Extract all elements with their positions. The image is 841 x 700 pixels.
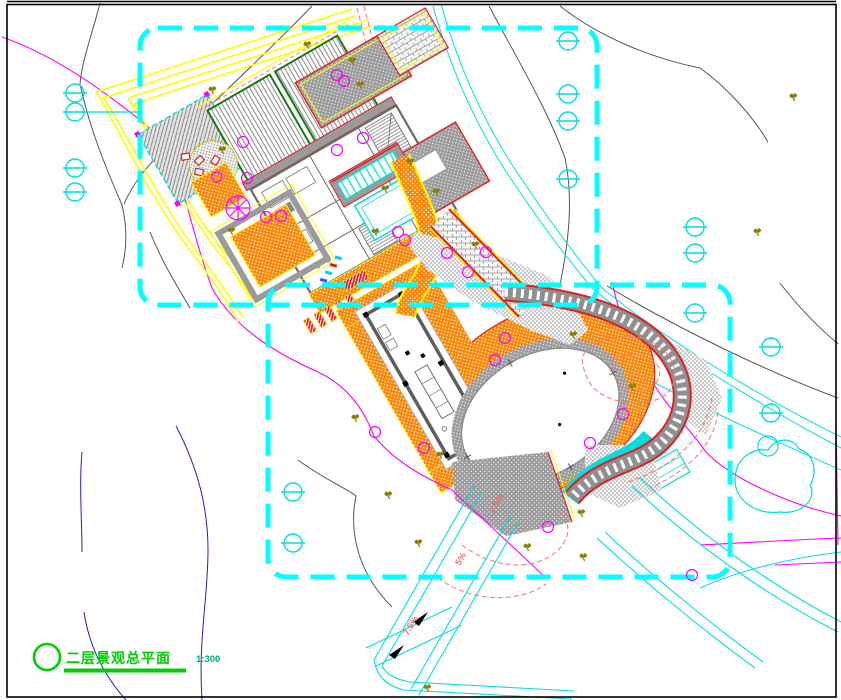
plan-scale: 1:300	[196, 654, 220, 665]
cad-sheet: 7.5% 5% 7.5%	[0, 0, 841, 700]
plan-title: 二层景观总平面	[66, 650, 171, 666]
site-plan-canvas: 7.5% 5% 7.5%	[0, 0, 841, 700]
